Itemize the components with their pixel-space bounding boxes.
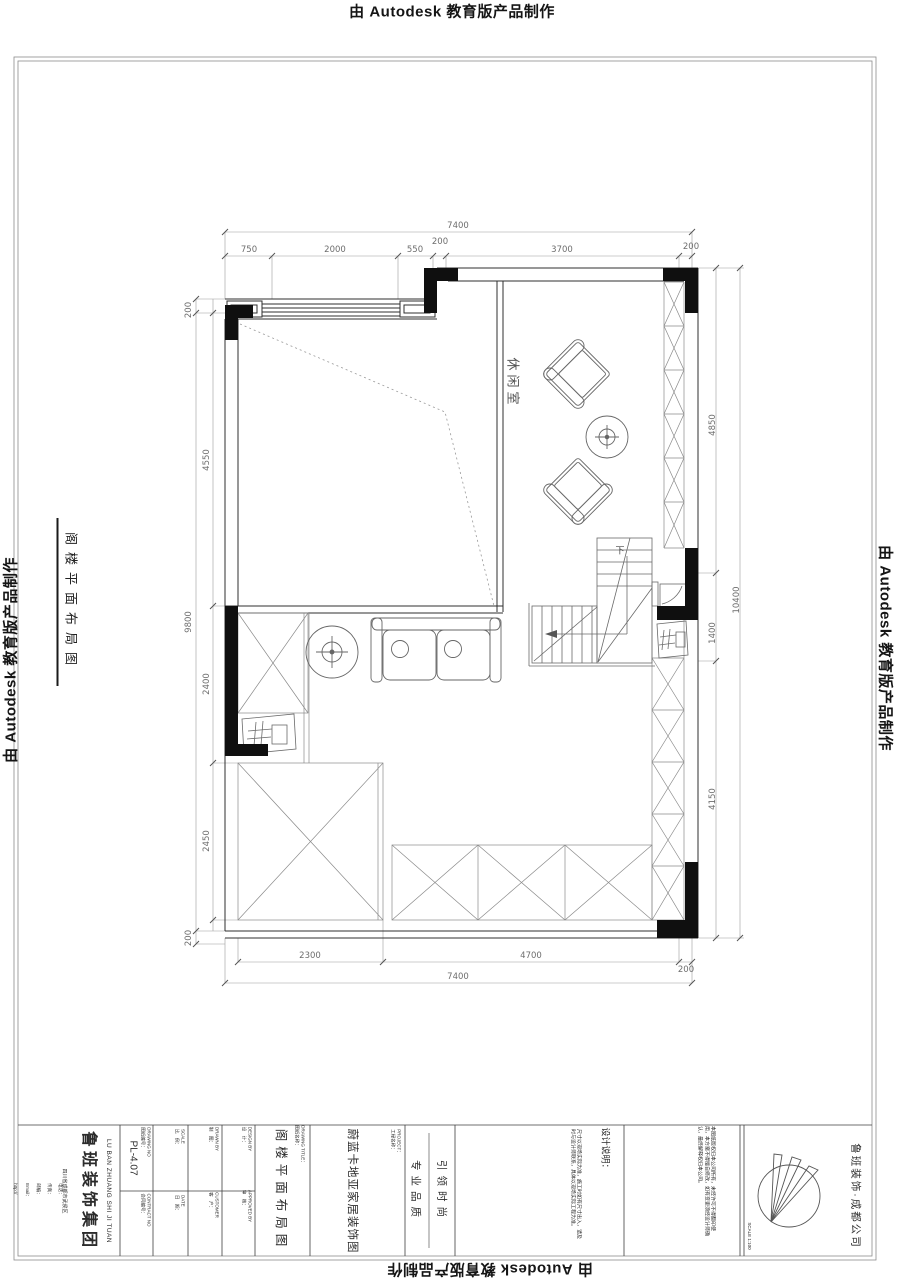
contact-line: http://: [13, 1183, 19, 1199]
dim-left-200-top: 200: [184, 302, 194, 318]
drawing-no-value: PL-4.07: [126, 1140, 139, 1175]
company-contact-block: 电话： 传真： 邮编： Email： http://: [7, 1183, 69, 1199]
stair-down-label: 下: [615, 544, 624, 557]
round-table-leisure: [586, 416, 628, 458]
dim-bottom-2300: 2300: [299, 951, 321, 961]
company-name-cn: 鲁班装饰集团: [78, 1131, 98, 1251]
watermark-right: 由 Autodesk 教育版产品制作: [876, 545, 897, 751]
floor-plan-linework: [0, 0, 900, 1286]
contact-line: 邮编：: [35, 1183, 41, 1199]
dim-bottom-total: 7400: [447, 972, 469, 982]
company-logo: [758, 1154, 820, 1227]
company-branch: 鲁班装饰·成都公司: [848, 1143, 861, 1249]
dim-top-seg-5: 3700: [551, 245, 573, 255]
project-name-value: 蔚蓝卡地亚家居装饰图: [345, 1129, 359, 1254]
dim-right-10400: 10400: [732, 586, 742, 613]
design-notes-title: 设计说明：: [599, 1127, 610, 1172]
dim-top-seg-6: 200: [683, 242, 699, 252]
dim-bottom-4700: 4700: [520, 951, 542, 961]
dim-left-2450: 2450: [202, 830, 212, 852]
dim-left-4550: 4550: [202, 449, 212, 471]
contract-no-label: CONTRACT NO 合同编号：: [140, 1194, 151, 1227]
dim-top-seg-1: 750: [241, 245, 257, 255]
scale-label: SCALE 比 例：: [174, 1129, 185, 1147]
dim-top-total: 7400: [447, 221, 469, 231]
slogan-fashion: 引领时尚: [434, 1160, 447, 1222]
dim-right-4850: 4850: [708, 414, 718, 436]
approved-by-label: APPROVED BY 审 核：: [241, 1190, 252, 1222]
company-name-en: LU BAN ZHUANG SHI JI TUAN: [104, 1139, 112, 1243]
drawn-by-label: DRAWN BY 制 图：: [208, 1127, 219, 1151]
project-label: PROJECT： 工程名称：: [390, 1129, 401, 1155]
drawing-title-value: 阁楼平面布局图: [272, 1129, 288, 1252]
dim-left-2400: 2400: [202, 673, 212, 695]
sofa: [371, 618, 501, 682]
dim-bottom-200: 200: [678, 965, 694, 975]
side-drawing-title: 阁楼平面布局图: [57, 518, 82, 686]
design-notes-body: 尺寸以现场实际为准，施工时如有尺寸出入，请及时与设计师联系，具体以现场实际工程为…: [569, 1129, 582, 1241]
dim-top-seg-3: 550: [407, 245, 423, 255]
drawing-no-label: DRAWING NO 图纸编号：: [140, 1127, 151, 1157]
dim-top-seg-4: 200: [432, 237, 448, 247]
dim-top-seg-2: 2000: [324, 245, 346, 255]
copyright-notes: 本图纸版权归本公司所有，未经许可不得翻印使用，本方案不得擅自修改，如有变更须经设…: [697, 1126, 716, 1238]
contact-line: Email：: [24, 1183, 30, 1199]
dim-right-1400: 1400: [708, 622, 718, 644]
scale-note: SCALE 1:100: [746, 1222, 752, 1249]
watermark-top: 由 Autodesk 教育版产品制作: [349, 1, 555, 22]
cad-drawing-sheet: 由 Autodesk 教育版产品制作 由 Autodesk 教育版产品制作 由 …: [0, 0, 900, 1286]
room-label-leisure: 休闲室: [505, 357, 524, 408]
armchair-top: [541, 337, 615, 411]
roof-slope-dashed-line: [240, 324, 494, 606]
armchair-bottom: [541, 453, 615, 527]
watermark-left: 由 Autodesk 教育版产品制作: [0, 557, 21, 763]
dim-left-200-bottom: 200: [184, 930, 194, 946]
dim-left-9800: 9800: [184, 611, 194, 633]
hatch-areas: [238, 282, 684, 920]
round-table-left: [306, 626, 358, 678]
watermark-bottom: 由 Autodesk 教育版产品制作: [387, 1260, 593, 1281]
design-by-label: DESIGN BY 设 计：: [241, 1127, 252, 1152]
contact-line: 传真：: [46, 1183, 52, 1199]
dim-right-4150: 4150: [708, 788, 718, 810]
furniture: [306, 337, 628, 682]
drawing-title-label: DRAWING TITLE： 图纸名称：: [294, 1125, 305, 1165]
date-label: DATE 日 期：: [174, 1195, 185, 1213]
company-address: 四川省成都市武侯区: [61, 1168, 67, 1213]
slogan-quality: 专业品质: [408, 1160, 421, 1222]
customer-label: CUSTOMER 客 户：: [208, 1192, 219, 1218]
